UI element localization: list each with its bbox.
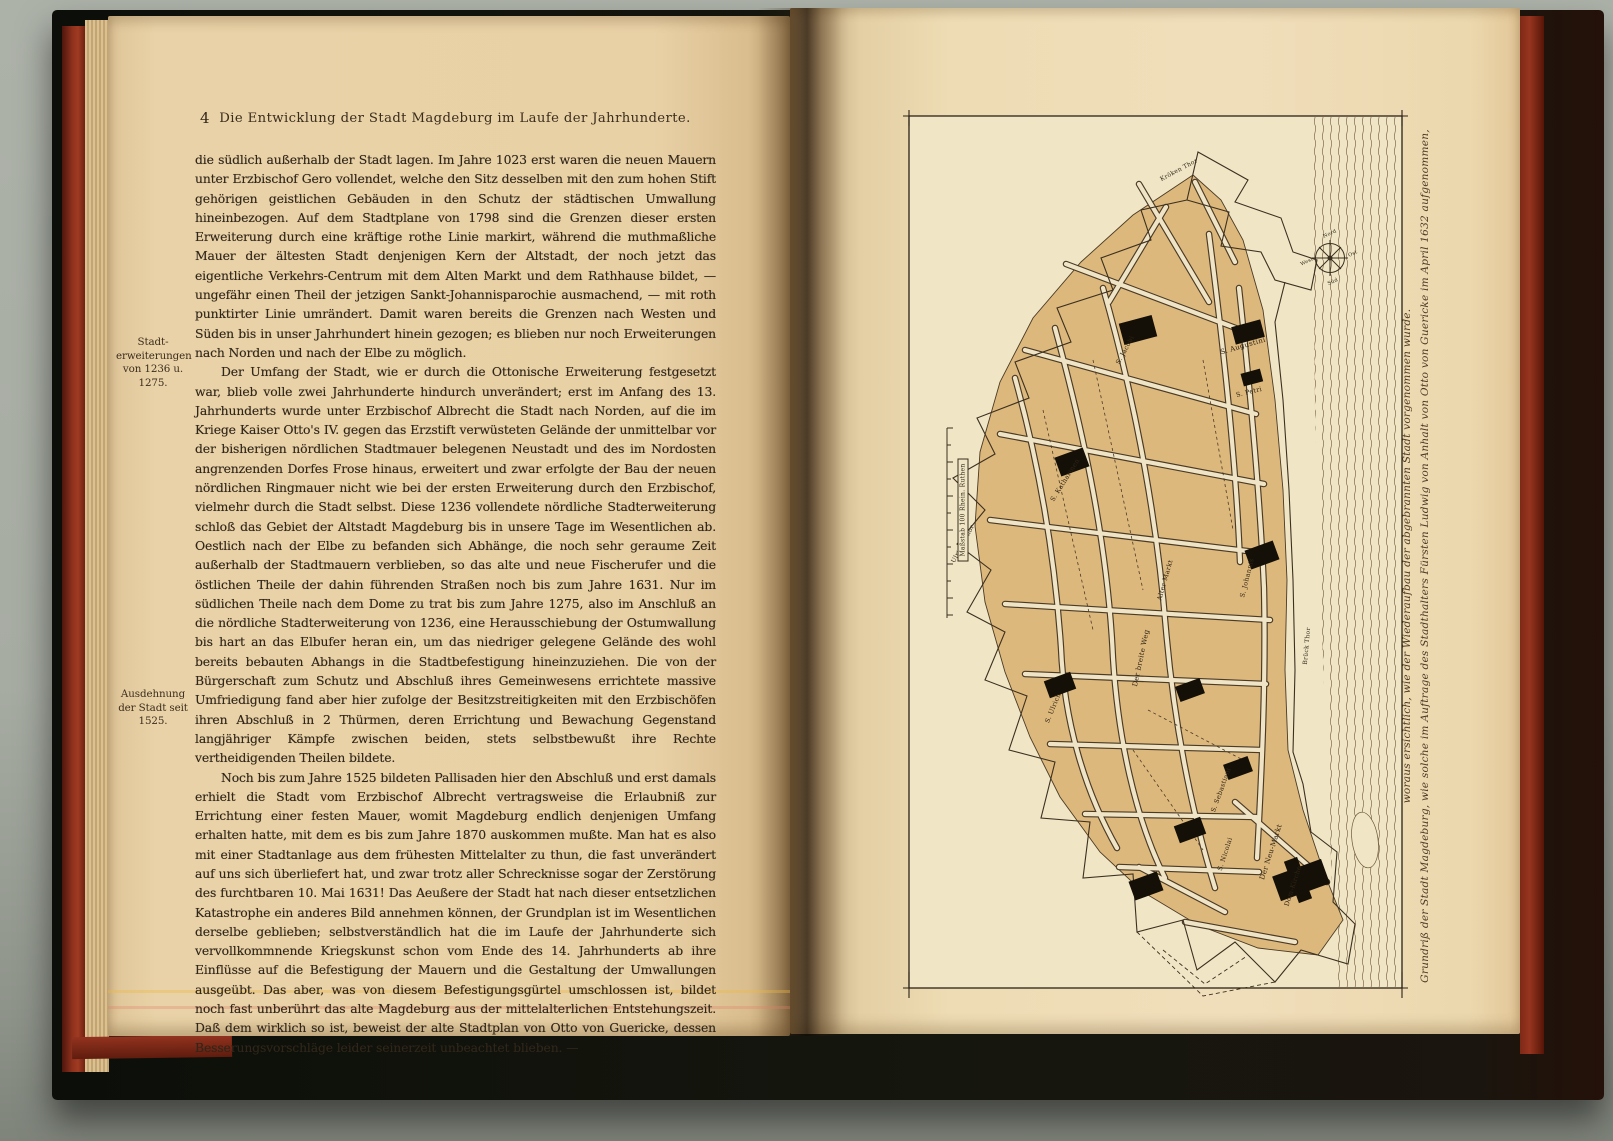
paragraph: Noch bis zum Jahre 1525 bildeten Pallisa… (195, 768, 716, 1057)
body-text: die südlich außerhalb der Stadt lagen. I… (195, 150, 716, 1057)
map-caption-line2: woraus ersichtlich, wie der Wiederaufbau… (1401, 116, 1418, 996)
margin-note-1525: Ausdehnung der Stadt seit 1525. (116, 688, 190, 729)
magdeburg-city-map-svg (903, 110, 1408, 998)
red-page-edge-right (1520, 16, 1544, 1054)
page-stack-left (85, 20, 109, 1072)
paragraph: die südlich außerhalb der Stadt lagen. I… (195, 150, 716, 362)
running-header: Die Entwicklung der Stadt Magdeburg im L… (195, 111, 715, 126)
map-caption-line1: Grundriß der Stadt Magdeburg, wie solche… (1419, 116, 1436, 996)
paragraph: Der Umfang der Stadt, wie er durch die O… (195, 362, 716, 767)
red-page-edge-left (62, 26, 85, 1072)
margin-note-1236: Stadt-erweiterungen von 1236 u. 1275. (116, 336, 190, 390)
magdeburg-city-map: S. JacobiS. AugustiniS. PetriS. Katharin… (903, 110, 1408, 998)
book-photograph: 4 Die Entwicklung der Stadt Magdeburg im… (0, 0, 1613, 1141)
